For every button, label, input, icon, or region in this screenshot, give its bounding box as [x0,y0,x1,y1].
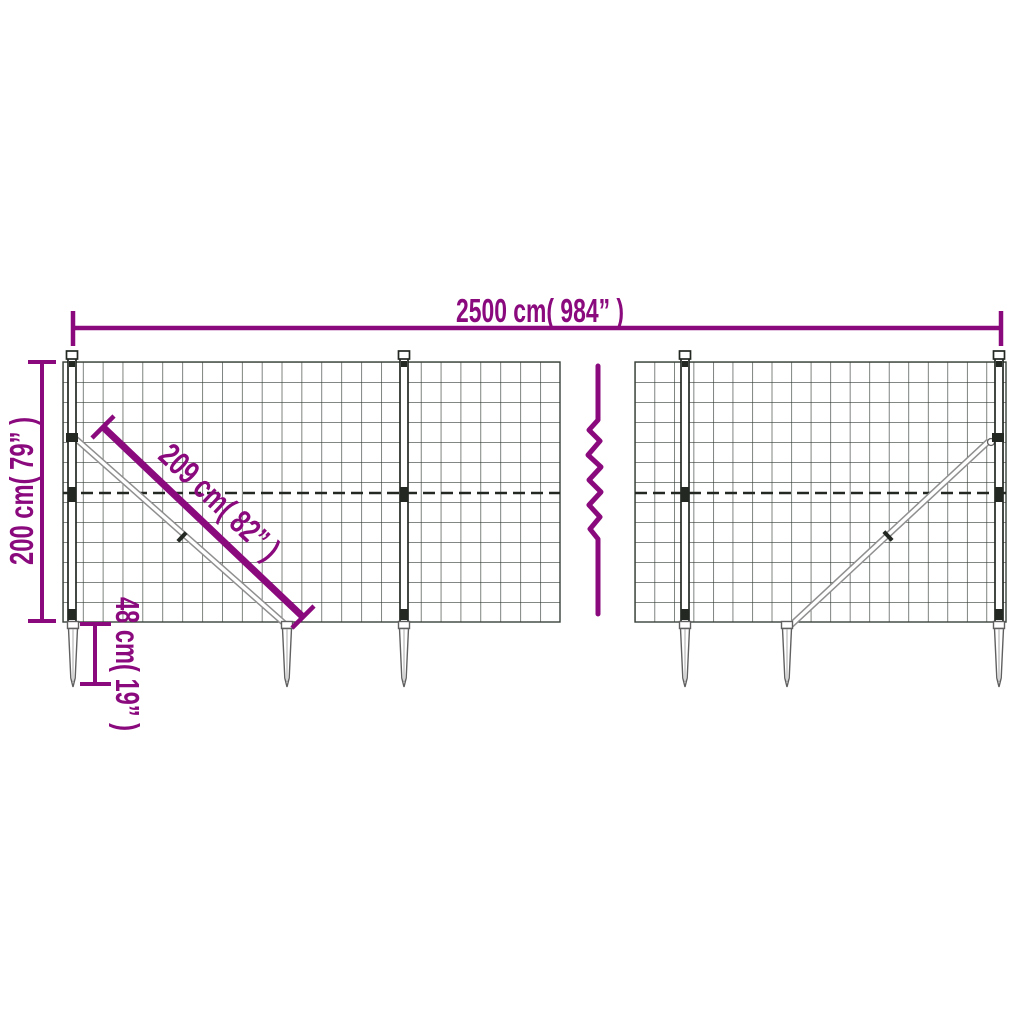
dimension-total-width: 2500 cm( 984” ) [73,292,1001,346]
post-corner-left [66,351,78,622]
ground-spike [782,622,793,688]
post-mid-left [399,351,410,622]
ground-spike [399,622,410,688]
anchor-depth-label: 48 cm( 19” ) [109,597,146,731]
break-zigzag-line [588,366,601,614]
diagram-canvas: 2500 cm( 984” ) 200 cm( 79” ) 209 cm( 82… [0,0,1024,1024]
fence-dimension-diagram: 2500 cm( 984” ) 200 cm( 79” ) 209 cm( 82… [0,0,1024,1024]
post-mid-right [680,351,691,622]
dimension-height: 200 cm( 79” ) [3,362,56,621]
height-label: 200 cm( 79” ) [3,417,40,565]
ground-spike [994,622,1005,688]
ground-spike [282,622,293,688]
ground-spike [68,622,79,688]
ground-spike [680,622,691,688]
ground-spikes [68,622,1005,688]
total-width-label: 2500 cm( 984” ) [456,292,624,329]
